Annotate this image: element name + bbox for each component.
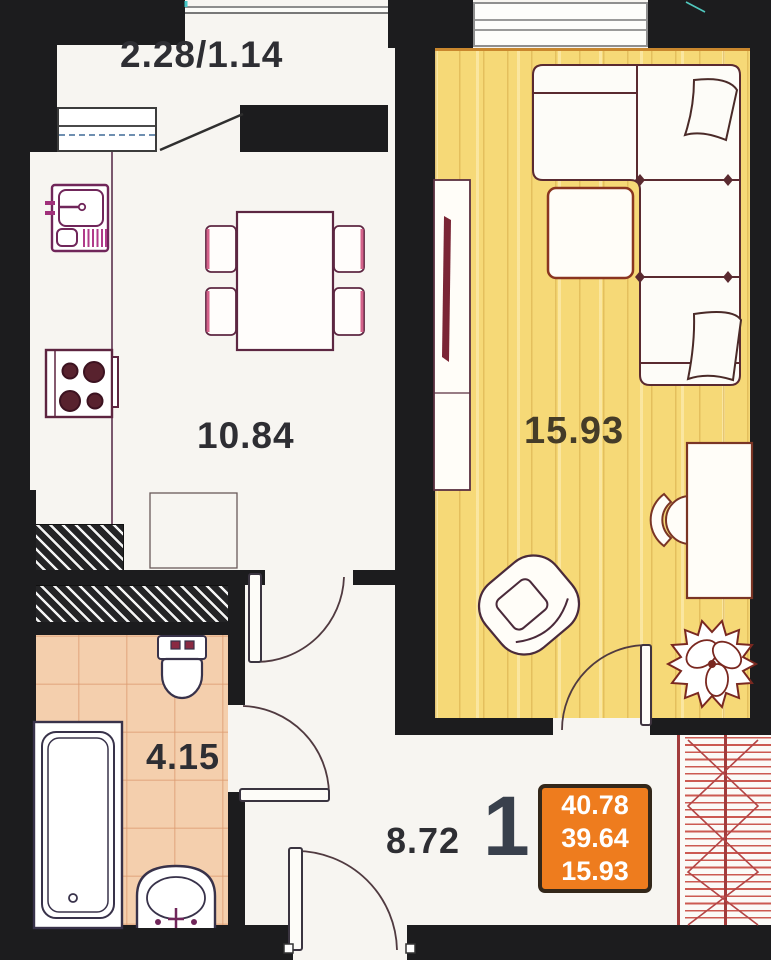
kitchen-sink-icon: [45, 185, 108, 251]
toilet-icon: [158, 636, 206, 698]
stove-icon: [46, 350, 118, 417]
dining-table-icon: [206, 212, 364, 350]
balcony-area-label: 2.28/1.14: [120, 34, 283, 76]
area-summary-badge: 40.78 39.64 15.93: [538, 784, 652, 893]
armchair-icon: [467, 543, 591, 666]
desk-icon: [687, 443, 752, 598]
ottoman-icon: [548, 188, 633, 278]
pillow-icon: [688, 312, 741, 380]
living-area: 15.93: [561, 855, 629, 888]
table-top: [237, 212, 333, 350]
door-swing-icon: [160, 114, 243, 150]
door-swing-icon: [284, 848, 415, 953]
tv-unit-icon: [434, 180, 470, 490]
bathroom-area-label: 4.15: [146, 736, 220, 778]
cabinet-outline: [150, 493, 237, 568]
total-area: 40.78: [561, 789, 629, 822]
plant-icon: [668, 621, 756, 707]
scan-mark: [686, 2, 705, 12]
stair-run-lines: [688, 740, 758, 925]
hallway-area-label: 8.72: [386, 820, 460, 862]
kitchen-area-label: 10.84: [197, 415, 295, 457]
rooms-count: 1: [483, 778, 530, 875]
door-swing-icon: [562, 645, 651, 730]
reduced-area: 39.64: [561, 822, 629, 855]
door-swing-icon: [249, 574, 344, 662]
door-swing-icon: [240, 706, 329, 801]
living-room-area-label: 15.93: [524, 410, 624, 453]
bathtub-icon: [34, 722, 122, 928]
furniture-layer: [0, 0, 771, 960]
wash-basin-icon: [137, 866, 215, 928]
floor-plan: 2.28/1.14 10.84 15.93 4.15 8.72 1 40.78 …: [0, 0, 771, 960]
